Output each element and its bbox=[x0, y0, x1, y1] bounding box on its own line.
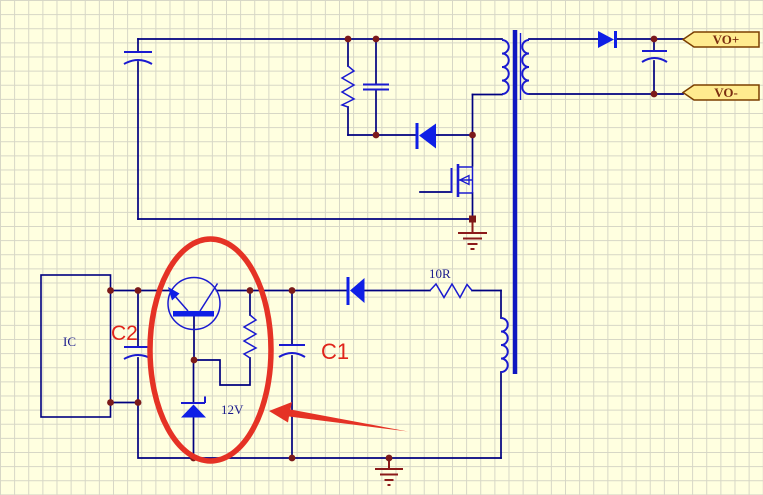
transformer bbox=[501, 30, 529, 374]
port-vo-minus: VO- bbox=[683, 85, 759, 100]
snubber-capacitor bbox=[363, 85, 389, 90]
port-vo-plus-label: VO+ bbox=[713, 32, 740, 47]
transformer-core bbox=[515, 30, 521, 374]
clamp-diode bbox=[417, 123, 436, 149]
feedback-resistor bbox=[244, 315, 256, 358]
output-diode bbox=[598, 31, 616, 48]
port-vo-plus: VO+ bbox=[683, 32, 759, 47]
schematic-page: VO+ VO- IC 12V 10R bbox=[0, 0, 763, 495]
ground-symbol-bottom bbox=[375, 458, 403, 485]
zener-value-label: 12V bbox=[221, 402, 244, 417]
aux-diode bbox=[348, 277, 365, 305]
mosfet bbox=[452, 164, 473, 197]
snubber-resistor bbox=[342, 66, 354, 107]
aux-winding bbox=[501, 318, 508, 372]
aux-resistor-10r: 10R bbox=[429, 266, 472, 298]
port-vo-minus-label: VO- bbox=[714, 85, 738, 100]
source-ground-junction bbox=[469, 216, 476, 223]
primary-winding bbox=[502, 40, 509, 94]
ic-box: IC bbox=[41, 275, 111, 417]
wires bbox=[111, 39, 684, 458]
red-arrow-annotation bbox=[269, 402, 408, 432]
annotation-c1-label: C1 bbox=[321, 339, 349, 364]
secondary-winding bbox=[522, 40, 529, 94]
ground-symbol-top bbox=[458, 222, 487, 249]
annotation-c2-label: C2 bbox=[111, 322, 138, 345]
resistor-value-label: 10R bbox=[429, 266, 451, 281]
schematic-canvas: VO+ VO- IC 12V 10R bbox=[0, 0, 763, 495]
ic-label: IC bbox=[63, 334, 76, 349]
zener-diode: 12V bbox=[181, 397, 244, 418]
